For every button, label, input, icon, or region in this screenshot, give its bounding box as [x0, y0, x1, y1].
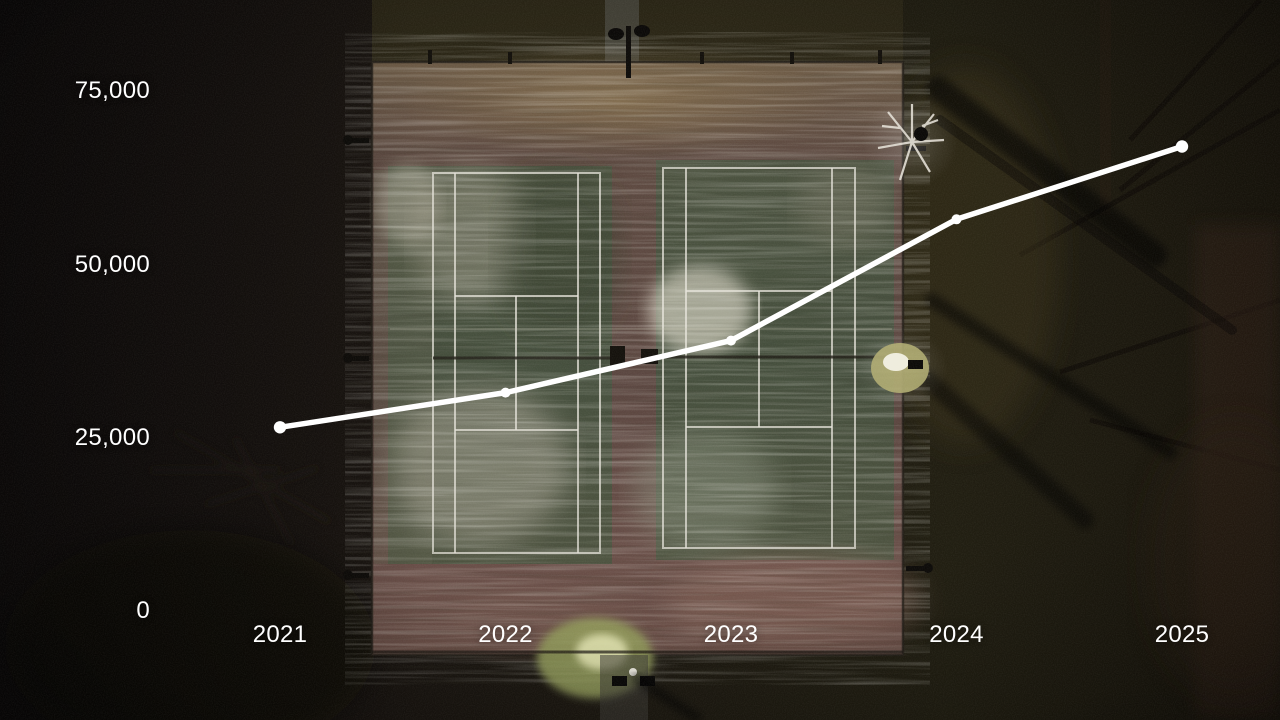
data-point-2023 [726, 336, 736, 346]
y-axis-label-75000: 75,000 [0, 79, 150, 103]
y-axis-label-25000: 25,000 [0, 426, 150, 450]
data-point-2025 [1176, 140, 1188, 152]
x-axis-label-2021: 2021 [253, 623, 308, 647]
y-axis-label-0: 0 [0, 599, 150, 623]
chart-over-photo-canvas: 75,000 50,000 25,000 0 2021 2022 2023 20… [0, 0, 1280, 720]
data-point-2021 [274, 421, 286, 433]
data-line [280, 147, 1182, 428]
data-point-2024 [952, 214, 962, 224]
data-point-2022 [501, 388, 511, 398]
x-axis-label-2024: 2024 [929, 623, 984, 647]
line-chart [0, 0, 1280, 720]
data-points [274, 140, 1188, 433]
y-axis-label-50000: 50,000 [0, 253, 150, 277]
x-axis-label-2022: 2022 [478, 623, 533, 647]
x-axis-label-2025: 2025 [1155, 623, 1210, 647]
x-axis-label-2023: 2023 [704, 623, 759, 647]
